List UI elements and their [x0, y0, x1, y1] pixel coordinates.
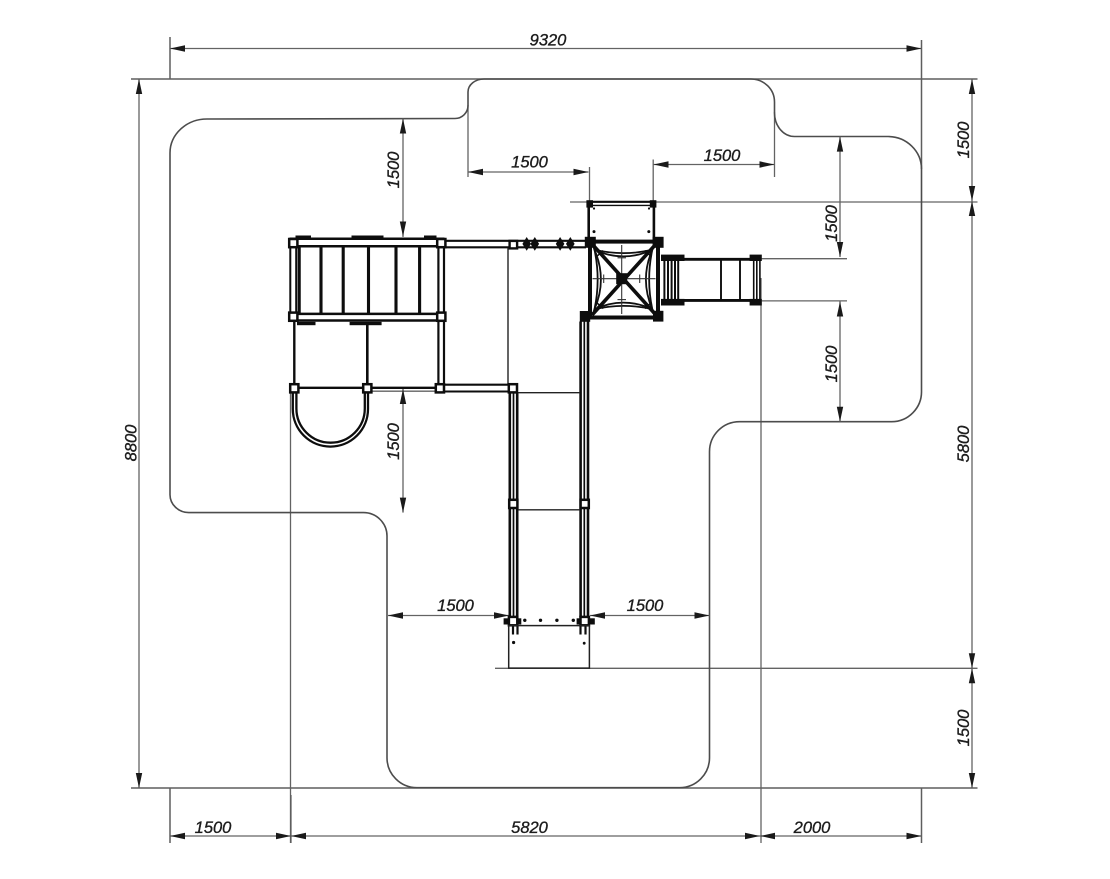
svg-text:5800: 5800: [955, 425, 973, 463]
svg-text:2000: 2000: [793, 819, 832, 837]
svg-text:5820: 5820: [511, 819, 549, 837]
svg-text:1500: 1500: [823, 204, 841, 242]
svg-text:1500: 1500: [195, 819, 233, 837]
svg-text:1500: 1500: [955, 709, 973, 747]
svg-text:9320: 9320: [530, 32, 568, 50]
svg-text:1500: 1500: [385, 151, 403, 189]
svg-text:1500: 1500: [627, 597, 665, 615]
svg-text:1500: 1500: [955, 121, 973, 159]
svg-text:1500: 1500: [437, 597, 475, 615]
svg-text:1500: 1500: [704, 147, 742, 165]
svg-text:1500: 1500: [823, 345, 841, 383]
svg-text:1500: 1500: [511, 154, 549, 172]
svg-text:1500: 1500: [385, 422, 403, 460]
svg-text:8800: 8800: [123, 424, 141, 462]
